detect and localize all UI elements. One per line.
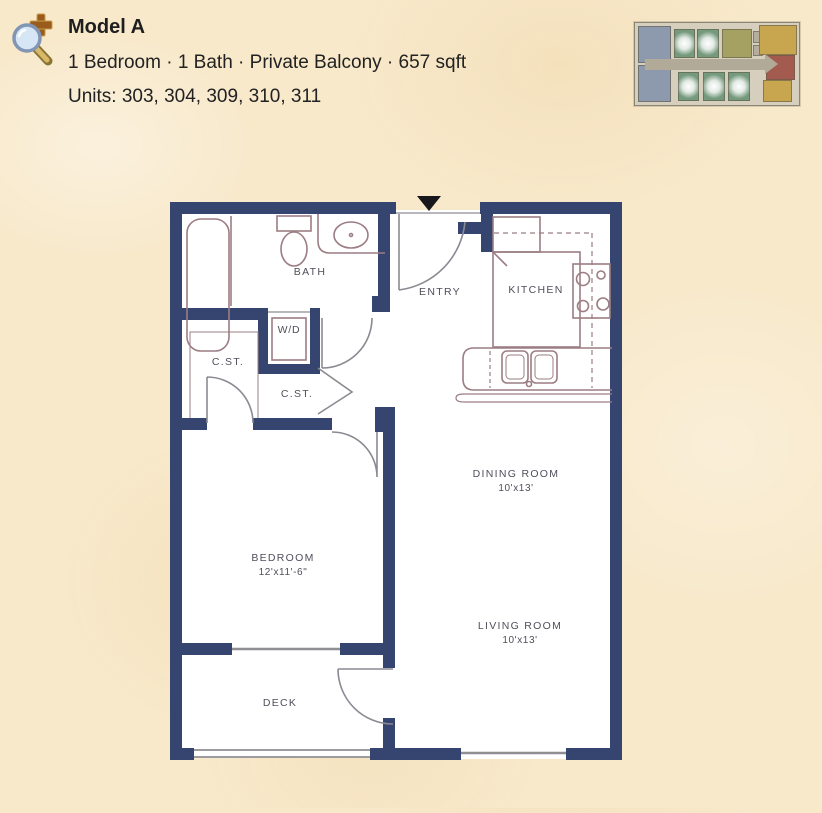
- label-kitchen: KITCHEN: [496, 284, 576, 297]
- label-dining-room: DINING ROOM: [456, 468, 576, 481]
- dims-dining-room: 10'x13': [456, 483, 576, 495]
- dims-bedroom: 12'x11'-6": [223, 567, 343, 579]
- page: { "header": { "title": "Model A", "detai…: [0, 0, 822, 808]
- floorplan-drawing: [0, 0, 822, 808]
- entry-marker-triangle: [417, 196, 441, 211]
- label-bedroom: BEDROOM: [223, 552, 343, 565]
- label-deck: DECK: [250, 697, 310, 710]
- label-bath: BATH: [270, 266, 350, 279]
- label-wd: W/D: [264, 324, 314, 337]
- label-closet-hall: C.ST.: [267, 388, 327, 401]
- floorplan-image[interactable]: BATH W/D C.ST. C.ST. ENTRY KITCHEN DININ…: [0, 0, 822, 808]
- label-closet-left: C.ST.: [198, 356, 258, 369]
- label-living-room: LIVING ROOM: [460, 620, 580, 633]
- label-entry: ENTRY: [400, 286, 480, 299]
- dims-living-room: 10'x13': [460, 635, 580, 647]
